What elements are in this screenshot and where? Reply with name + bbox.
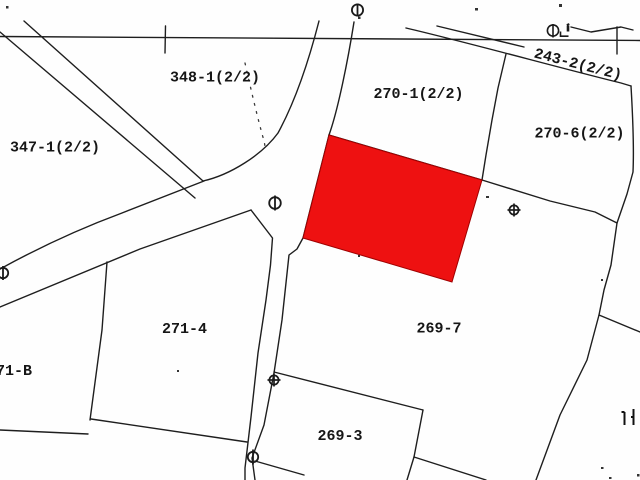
svg-text:270-1(2/2): 270-1(2/2) [374, 86, 464, 103]
svg-text:271-B: 271-B [0, 363, 32, 380]
svg-text:270-6(2/2): 270-6(2/2) [535, 126, 625, 143]
svg-text:271-4: 271-4 [162, 321, 207, 338]
svg-text:347-1(2/2): 347-1(2/2) [10, 140, 100, 157]
svg-text:348-1(2/2): 348-1(2/2) [170, 70, 260, 87]
svg-text:243-2(2/2): 243-2(2/2) [532, 46, 623, 85]
svg-text:269-7: 269-7 [417, 321, 462, 338]
svg-text:269-3: 269-3 [318, 428, 363, 445]
